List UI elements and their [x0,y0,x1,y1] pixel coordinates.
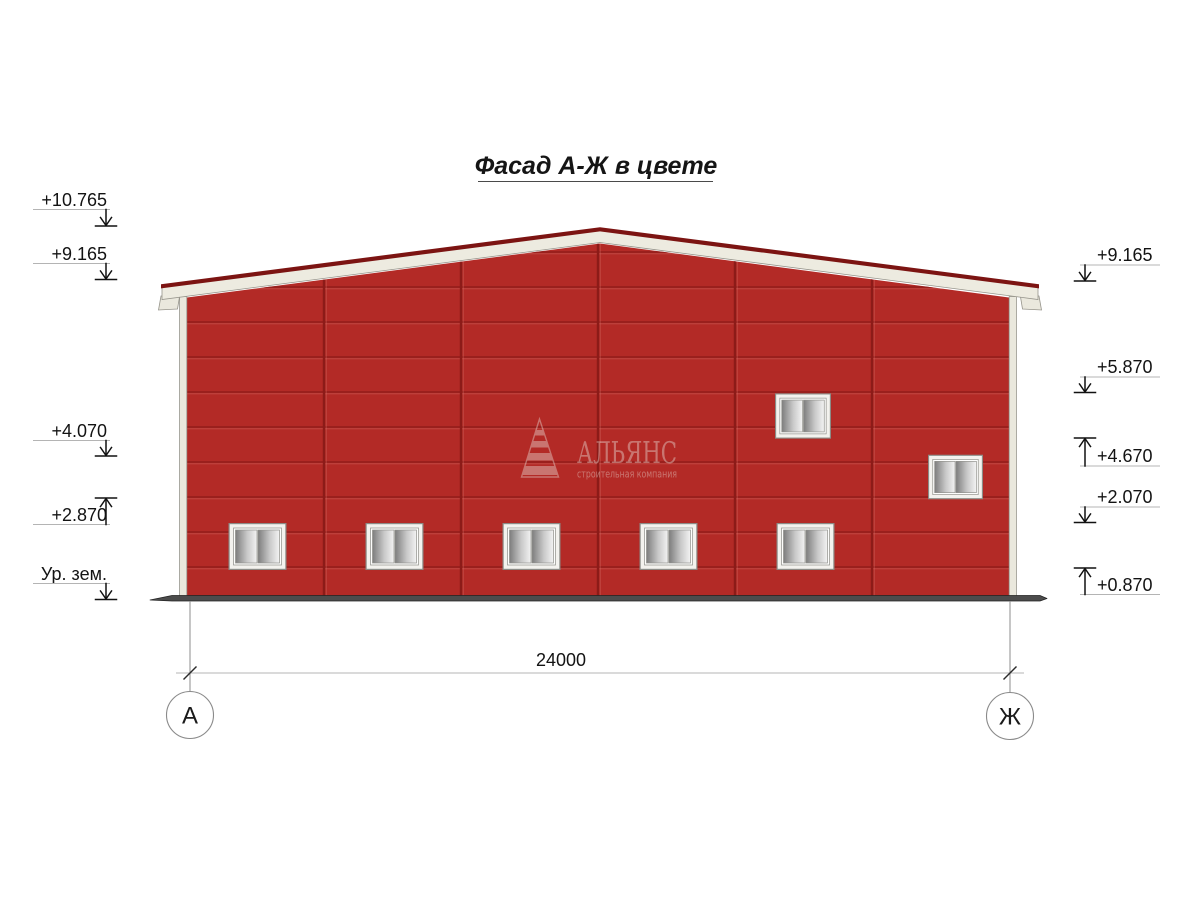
corner-trim-right [1009,297,1016,597]
elevation-markers-left: +10.765 +9.165 +4.070 [33,190,117,600]
arrow-down-icon [1075,507,1096,523]
elevation-marker: +9.165 [1075,245,1161,281]
elevation-markers-right: +9.165 +5.870 +4.670 [1075,245,1161,595]
axis-label-zh: Ж [999,704,1021,731]
dimension-value: 24000 [536,650,586,670]
elevation-marker: +2.870 [33,498,117,525]
arrow-up-icon [1075,438,1096,466]
arrow-down-icon [96,210,117,227]
watermark-subtitle: строительная компания [577,468,677,481]
elevation-label: +2.070 [1097,487,1153,507]
arrow-down-icon [96,584,117,600]
window [929,455,983,498]
window [777,524,834,570]
watermark-name: АЛЬЯНС [577,436,677,471]
elevation-marker: +5.870 [1075,357,1161,393]
dimension-annotation: 24000 А Ж [167,601,1034,740]
arrow-up-icon [1075,568,1096,595]
elevation-label: +2.870 [51,505,107,525]
window [366,524,423,570]
elevation-label: +4.670 [1097,446,1153,466]
elevation-marker: +4.070 [33,421,117,456]
page-title: Фасад А-Ж в цвете [475,152,718,180]
elevation-label: +10.765 [41,190,107,210]
arrow-down-icon [1075,377,1096,393]
axis-bubble-a: А [167,692,214,739]
elevation-marker: +10.765 [33,190,117,226]
elevation-marker: +4.670 [1075,438,1161,466]
ground-line [150,596,1047,602]
elevation-label: Ур. зем. [41,564,107,584]
elevation-marker: +9.165 [33,244,117,280]
elevation-label: +9.165 [51,244,107,264]
arrow-down-icon [1075,265,1096,281]
axis-bubble-zh: Ж [987,693,1034,740]
elevation-label: +9.165 [1097,245,1153,265]
elevation-marker: +0.870 [1075,568,1161,595]
window [229,524,286,570]
corner-trim-left [180,297,187,597]
elevation-marker: Ур. зем. [33,564,117,600]
arrow-down-icon [96,264,117,280]
window [776,394,831,438]
window [640,524,697,570]
elevation-label: +5.870 [1097,357,1153,377]
elevation-marker: +2.070 [1075,487,1161,523]
window [503,524,560,570]
facade-drawing: Фасад А-Ж в цвете [0,0,1200,900]
elevation-label: +4.070 [51,421,107,441]
axis-label-a: А [182,703,198,730]
drawing-header: Фасад А-Ж в цвете [475,152,718,182]
elevation-label: +0.870 [1097,575,1153,595]
arrow-down-icon [96,441,117,457]
building: АЛЬЯНС строительная компания [150,227,1047,601]
